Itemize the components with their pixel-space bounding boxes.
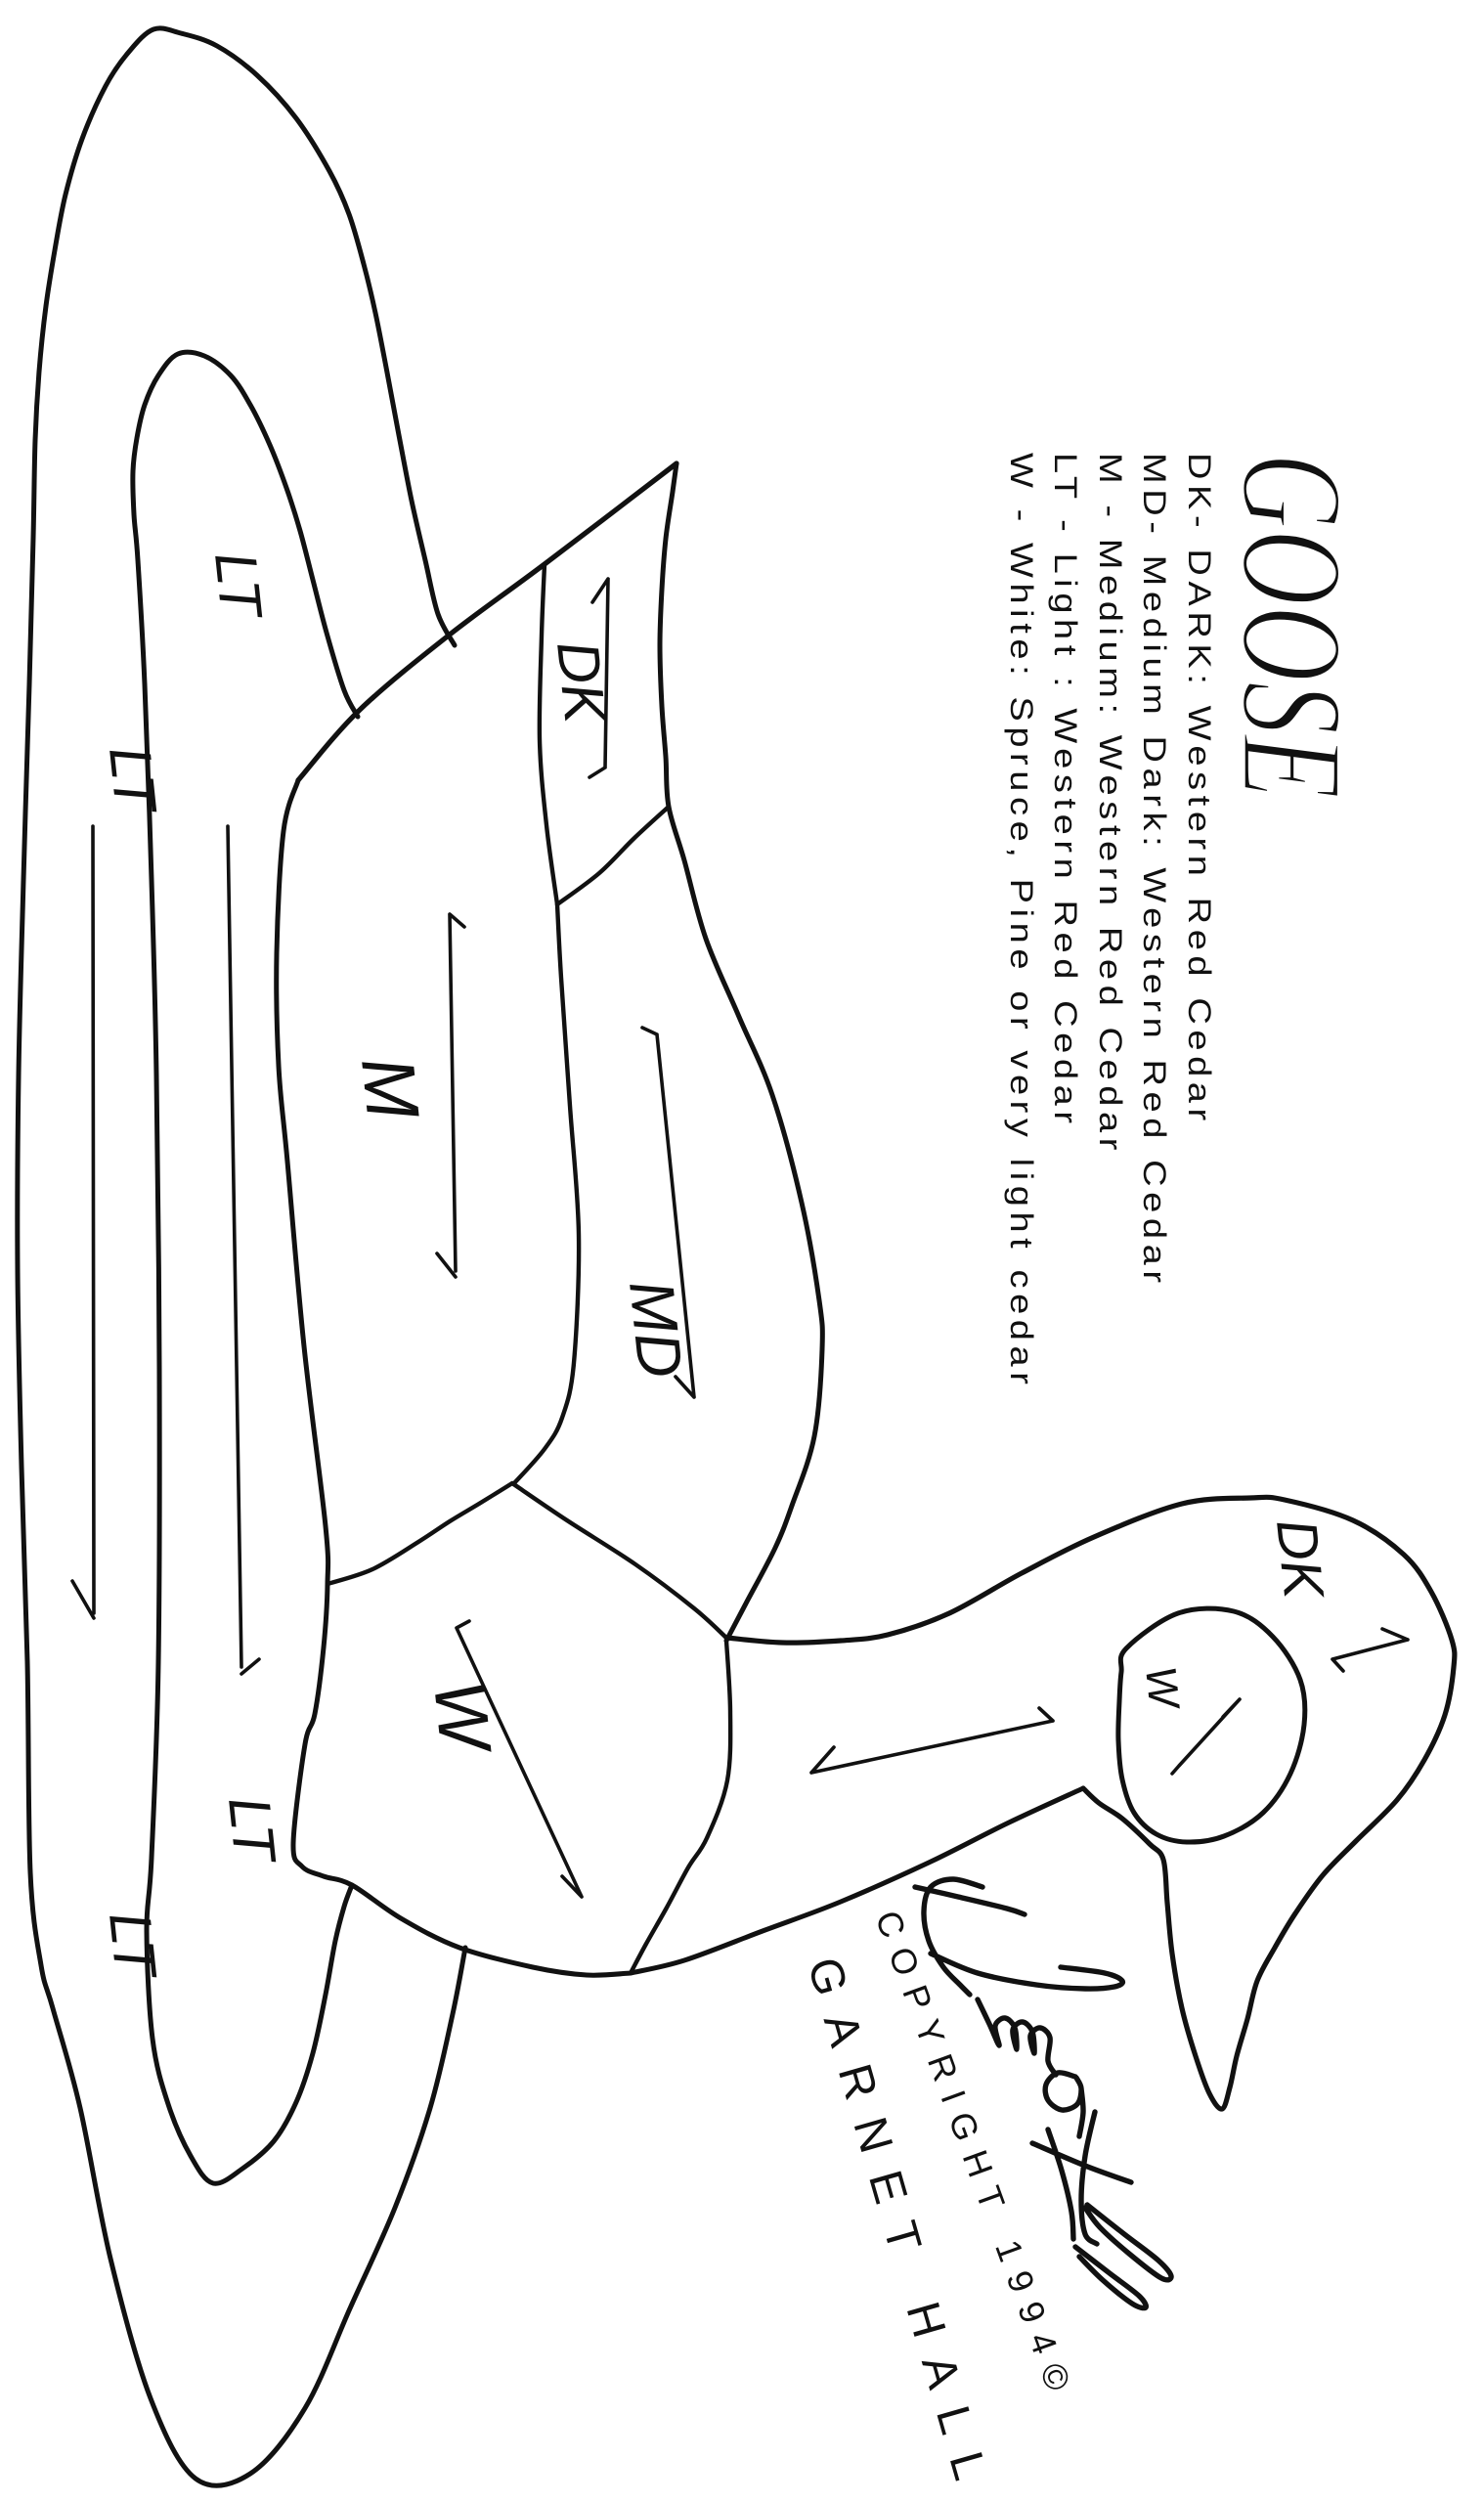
svg-text:LT: LT (97, 743, 169, 818)
svg-text:DK- DARK: Western Red Cedar: DK- DARK: Western Red Cedar (1182, 453, 1217, 1126)
svg-text:GOOSE: GOOSE (1211, 453, 1373, 799)
svg-text:MD- Medium Dark: Western Red C: MD- Medium Dark: Western Red Cedar (1137, 453, 1172, 1289)
svg-text:W - White: Spruce, Pine or ver: W - White: Spruce, Pine or very light ce… (1004, 453, 1039, 1390)
svg-text:DK: DK (545, 637, 619, 728)
svg-text:LT: LT (202, 549, 275, 624)
svg-text:MD: MD (616, 1277, 696, 1382)
svg-text:LT - Light : Western Red Cedar: LT - Light : Western Red Cedar (1048, 453, 1083, 1129)
svg-text:LT: LT (97, 1909, 169, 1984)
svg-text:M - Medium: Western Red Cedar: M - Medium: Western Red Cedar (1093, 453, 1128, 1156)
svg-text:M: M (345, 1053, 434, 1124)
svg-text:DK: DK (1264, 1516, 1335, 1603)
svg-text:LT: LT (216, 1793, 288, 1868)
